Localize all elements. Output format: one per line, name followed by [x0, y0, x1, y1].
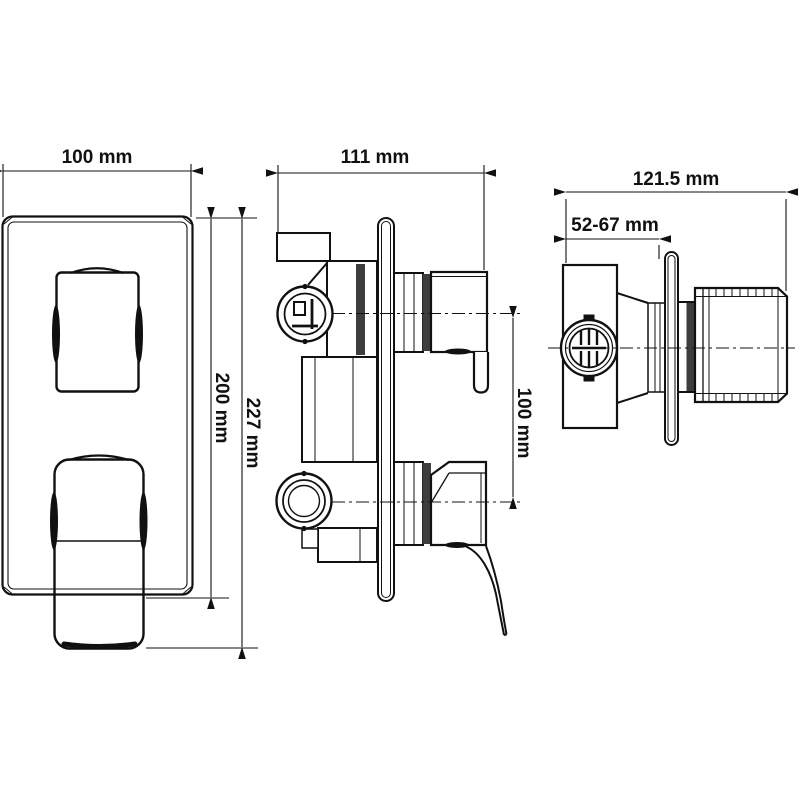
- upper-port-nub: [302, 339, 307, 344]
- knob-tab: [584, 315, 595, 321]
- wall-plate-outer: [378, 218, 394, 601]
- side-mixer-lever: [394, 462, 507, 635]
- upper-lever-block: [431, 272, 487, 352]
- lower-port-nub: [301, 471, 306, 476]
- side-diverter-knob: [278, 284, 333, 344]
- lower-hub-shadow: [423, 463, 432, 544]
- dim-profile-wall-depth: 52-67 mm: [566, 215, 659, 259]
- knob-body: [57, 273, 139, 392]
- lower-port-nub: [301, 526, 306, 531]
- upper-lever-grip: [474, 352, 488, 393]
- upper-hub: [394, 273, 423, 352]
- dim-profile-wall-depth-label: 52-67 mm: [571, 215, 659, 236]
- body-chamfer: [308, 263, 327, 285]
- lower-hub: [394, 462, 423, 545]
- lever-arm-inner: [486, 546, 507, 635]
- dim-front-width: 100 mm: [3, 147, 191, 217]
- lower-lever-shadow: [445, 542, 469, 548]
- side-diverter-lever: [394, 272, 488, 393]
- profile-outlet: [678, 288, 787, 402]
- outlet-connector-shadow: [687, 303, 695, 391]
- dim-profile-width-label: 121.5 mm: [633, 169, 720, 190]
- technical-drawing-page: 100 mm: [0, 0, 800, 800]
- front-view: 100 mm: [3, 147, 264, 649]
- lower-lever-block: [431, 462, 486, 545]
- dim-front-total-height-label: 227 mm: [242, 398, 263, 469]
- body-mid: [302, 357, 377, 462]
- profile-view: 121.5 mm 52-67 mm: [548, 169, 795, 445]
- side-view: 111 mm: [277, 147, 535, 635]
- body-upper-shadow: [356, 264, 365, 355]
- handle-bottom-band: [64, 644, 135, 647]
- dim-front-width-label: 100 mm: [62, 147, 133, 168]
- dim-front-plate-height-label: 200 mm: [211, 373, 232, 444]
- body-lower-step: [302, 529, 318, 548]
- body-cone: [617, 393, 648, 403]
- body-lower: [318, 528, 377, 562]
- side-wall-plate: [378, 218, 394, 601]
- lower-port-outer: [277, 474, 332, 529]
- dim-side-port-spacing-label: 100 mm: [513, 388, 534, 459]
- dim-side-port-spacing: 100 mm: [513, 318, 534, 497]
- upper-hub-shadow: [423, 274, 432, 351]
- knob-tab: [584, 376, 595, 382]
- handle-body: [55, 460, 144, 649]
- body-cone: [617, 293, 648, 303]
- front-mixer-handle: [50, 456, 148, 649]
- upper-lever-shadow: [445, 349, 471, 355]
- body-upper: [327, 261, 377, 357]
- body-top-block: [277, 233, 330, 261]
- lever-arm-tip: [504, 635, 507, 636]
- front-diverter-knob: [52, 268, 143, 391]
- technical-drawing: 100 mm: [0, 0, 800, 800]
- side-lower-port: [277, 471, 332, 531]
- dim-side-width-label: 111 mm: [341, 147, 410, 168]
- upper-port-nub: [302, 284, 307, 289]
